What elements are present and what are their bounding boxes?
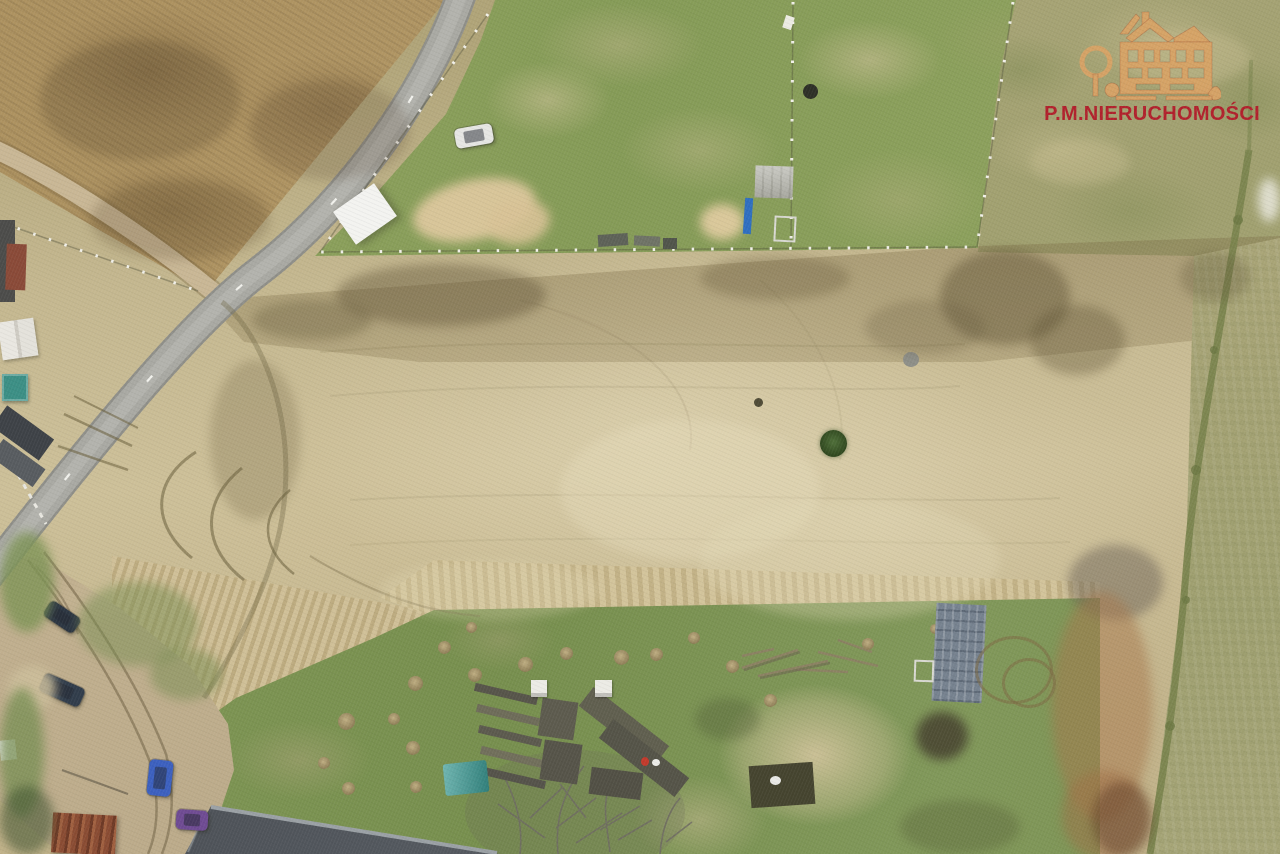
purple-car [175,809,208,831]
grass-blob-3 [150,648,222,700]
smudge-dark-8 [210,360,300,520]
mound-1 [408,676,423,691]
sand-circle [700,204,744,240]
beehive-1 [531,680,547,697]
white-marker [782,15,795,30]
field-dark-1 [40,40,240,160]
debris-2 [634,235,660,246]
watermark-text: P.M.NIERUCHOMOŚCI [1024,103,1280,126]
rusty-shed [51,812,117,854]
person-red [641,757,649,766]
smudge-dark-3 [700,256,850,300]
pasture-tan-2 [1030,140,1130,185]
garden-dark-2 [900,800,1020,854]
white-patch [1258,178,1280,222]
mound-10 [518,657,533,672]
aerial-photo-canvas: P.M.NIERUCHOMOŚCI [0,0,1280,854]
white-frame [914,660,935,683]
track-ring-2 [1002,658,1056,708]
field-dark-2 [250,80,410,180]
mound-5 [406,741,420,755]
white-canopy [333,183,397,244]
bed-strip-3 [478,725,542,747]
smudge-dark-6 [1180,252,1250,302]
smudge-dark-7 [865,300,985,355]
teal-shed [2,374,28,401]
watermark: P.M.NIERUCHOMOŚCI [1024,0,1280,132]
white-bag [770,776,781,785]
field-dark-3 [90,180,270,260]
gray-frame [773,215,796,242]
mound-16 [764,694,777,707]
dark-dot [754,398,763,407]
grass-blob-1 [0,532,54,632]
red-roof-building [5,244,27,291]
mound-12 [614,650,629,665]
dark-bed-b [539,740,582,785]
bed-c [589,767,644,800]
dark-brown-corner [1092,782,1152,854]
concrete-pad [754,165,793,198]
meadow-pale-3 [380,560,600,620]
mound-6 [338,713,355,730]
beehive-2 [595,680,612,697]
mound-13 [650,648,663,661]
manor-house-logo-icon [1076,4,1221,104]
smudge-dark-5 [1030,305,1125,375]
debris-3 [663,238,677,249]
mound-17 [862,638,874,650]
compost-pile [916,712,968,760]
bed-strip-1 [474,683,538,705]
mound-11 [560,647,573,660]
well [803,84,818,99]
bed-strip-5 [482,767,546,789]
bush [820,430,847,457]
mound-19 [466,622,477,633]
bed-strip-4 [480,746,544,768]
mound-4 [388,713,400,725]
blue-car [146,759,174,797]
teal-tarp [442,760,489,796]
white-car [454,123,495,149]
white-roof-house [0,318,38,361]
mound-7 [318,757,330,769]
tree-blob-sw [0,786,54,854]
pallet-grid [931,603,986,703]
mound-9 [342,782,355,795]
meadow-pale-2 [700,500,1000,620]
mound-8 [410,781,422,793]
mound-2 [438,641,451,654]
debris-1 [598,233,629,247]
mound-14 [688,632,700,644]
mound-15 [726,660,739,673]
bed-strip-2 [476,704,540,726]
mound-3 [468,668,482,682]
dark-plot [749,762,816,808]
garden-dark-1 [695,698,760,740]
blue-ladder [743,198,753,234]
white-sack [652,759,660,766]
dark-bed-a [538,698,579,741]
smudge-dark-2 [252,300,372,340]
